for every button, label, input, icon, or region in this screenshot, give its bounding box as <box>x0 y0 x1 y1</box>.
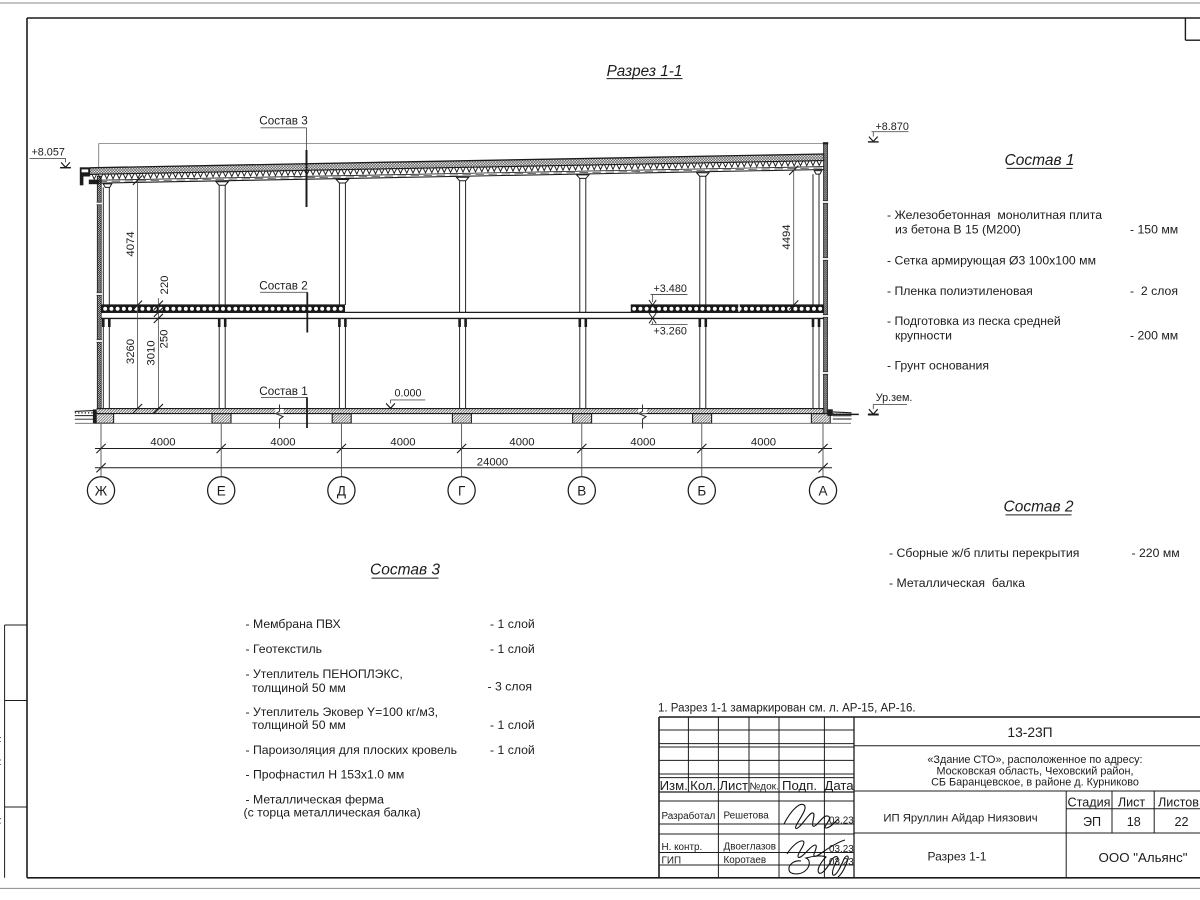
svg-text:0.000: 0.000 <box>395 388 422 400</box>
svg-text:Взам. инв. №: Взам. инв. № <box>0 632 1 688</box>
svg-text:4000: 4000 <box>390 436 415 448</box>
svg-text:- Подготовка из песка средней: - Подготовка из песка средней <box>887 314 1061 328</box>
svg-text:Ур.зем.: Ур.зем. <box>876 392 913 404</box>
svg-text:толщиной 50 мм: толщиной 50 мм <box>252 681 346 695</box>
svg-text:+3.480: +3.480 <box>654 283 687 295</box>
svg-text:«Здание СТО», расположенное по: «Здание СТО», расположенное по адресу: <box>927 754 1142 766</box>
svg-text:Инв. № подл.: Инв. № подл. <box>0 810 1 866</box>
svg-text:- Пароизоляция для плоских кро: - Пароизоляция для плоских кровель <box>246 743 457 757</box>
svg-text:4494: 4494 <box>781 224 793 249</box>
svg-text:Московская область, Чеховский: Московская область, Чеховский район, <box>936 765 1133 777</box>
svg-text:- 200 мм: - 200 мм <box>1130 329 1178 343</box>
svg-text:- 3 слоя: - 3 слоя <box>488 680 533 694</box>
svg-text:Листов: Листов <box>1158 795 1199 809</box>
svg-text:Состав 3: Состав 3 <box>259 114 307 127</box>
svg-text:Лист: Лист <box>719 778 748 793</box>
svg-text:+8.057: +8.057 <box>32 147 65 159</box>
svg-text:- Металлическая балка: - Металлическая балка <box>889 576 1025 590</box>
svg-text:Д: Д <box>337 483 346 498</box>
svg-text:- 2 слоя: - 2 слоя <box>1130 284 1178 298</box>
svg-text:Состав 2: Состав 2 <box>259 280 307 293</box>
svg-text:+8.870: +8.870 <box>876 121 909 133</box>
svg-text:22: 22 <box>1174 815 1188 829</box>
svg-text:- Утеплитель ПЕНОПЛЭКС,: - Утеплитель ПЕНОПЛЭКС, <box>246 667 403 681</box>
svg-text:4000: 4000 <box>150 436 175 448</box>
svg-text:220: 220 <box>159 276 171 295</box>
svg-text:Разработал: Разработал <box>662 811 716 822</box>
svg-text:Б: Б <box>697 483 706 498</box>
svg-text:24000: 24000 <box>477 456 508 468</box>
svg-text:Подп.: Подп. <box>782 778 817 793</box>
svg-text:толщиной 50 мм: толщиной 50 мм <box>252 718 346 732</box>
svg-text:- Железобетонная монолитная п: - Железобетонная монолитная плита <box>887 208 1102 222</box>
svg-text:ГИП: ГИП <box>662 855 682 866</box>
svg-text:- Профнастил Н 153х1.0 мм: - Профнастил Н 153х1.0 мм <box>246 767 405 781</box>
svg-text:- Геотекстиль: - Геотекстиль <box>246 642 323 656</box>
svg-text:СБ Баранцевское, в районе д. К: СБ Баранцевское, в районе д. Курниково <box>931 777 1139 789</box>
svg-text:Стадия: Стадия <box>1068 795 1111 809</box>
svg-text:Изм.: Изм. <box>660 778 688 793</box>
svg-text:А: А <box>818 483 827 498</box>
svg-text:из бетона В 15 (М200): из бетона В 15 (М200) <box>895 223 1021 237</box>
svg-text:4000: 4000 <box>630 436 655 448</box>
svg-text:Состав 1: Состав 1 <box>259 385 307 398</box>
svg-text:Дата: Дата <box>824 778 854 793</box>
svg-text:Лист: Лист <box>1118 795 1146 809</box>
svg-text:- Грунт основания: - Грунт основания <box>887 359 989 373</box>
svg-text:Двоеглазов: Двоеглазов <box>724 841 777 852</box>
svg-text:Кол.: Кол. <box>690 778 716 793</box>
svg-text:Разрез 1-1: Разрез 1-1 <box>607 63 683 80</box>
svg-text:Е: Е <box>217 483 226 498</box>
svg-text:крупности: крупности <box>895 329 952 343</box>
svg-text:13-23П: 13-23П <box>1007 725 1052 740</box>
svg-text:В: В <box>577 483 586 498</box>
svg-text:- 1 слой: - 1 слой <box>490 743 535 757</box>
svg-text:Состав 3: Состав 3 <box>370 561 440 578</box>
svg-text:Решетова: Решетова <box>724 810 770 821</box>
svg-text:- Мембрана ПВХ: - Мембрана ПВХ <box>246 617 341 631</box>
svg-text:+3.260: +3.260 <box>654 326 687 338</box>
svg-text:3010: 3010 <box>146 340 158 365</box>
svg-text:№док.: №док. <box>750 781 779 792</box>
svg-text:- Сборные ж/б плиты перекрытия: - Сборные ж/б плиты перекрытия <box>889 546 1079 560</box>
svg-text:Г: Г <box>458 483 466 498</box>
svg-text:4000: 4000 <box>509 436 534 448</box>
svg-text:ООО "Альянс": ООО "Альянс" <box>1099 850 1188 865</box>
svg-text:- Сетка армирующая Ø3 100х100: - Сетка армирующая Ø3 100х100 мм <box>887 254 1096 268</box>
svg-text:- 1 слой: - 1 слой <box>490 642 535 656</box>
svg-text:- 150 мм: - 150 мм <box>1130 223 1178 237</box>
svg-text:Коротаев: Коротаев <box>724 855 767 866</box>
svg-text:- Металлическая ферма: - Металлическая ферма <box>246 792 385 806</box>
svg-text:Подп. и дата: Подп. и дата <box>0 723 1 776</box>
svg-text:ИП Яруллин Айдар Ниязович: ИП Яруллин Айдар Ниязович <box>883 812 1037 824</box>
svg-text:18: 18 <box>1127 815 1141 829</box>
svg-text:3260: 3260 <box>125 339 137 364</box>
svg-text:- Утеплитель Эковер Y=100 кг/м: - Утеплитель Эковер Y=100 кг/м3, <box>246 705 439 719</box>
svg-text:Разрез 1-1: Разрез 1-1 <box>928 850 987 864</box>
svg-text:- Пленка полиэтиленовая: - Пленка полиэтиленовая <box>887 284 1033 298</box>
svg-text:- 1 слой: - 1 слой <box>490 617 535 631</box>
svg-text:1. Разрез 1-1 замаркирован см.: 1. Разрез 1-1 замаркирован см. л. АР-15,… <box>658 702 916 714</box>
svg-text:4000: 4000 <box>751 436 776 448</box>
svg-text:250: 250 <box>159 330 171 349</box>
svg-text:Н. контр.: Н. контр. <box>662 842 703 853</box>
svg-text:- 1 слой: - 1 слой <box>490 718 535 732</box>
svg-text:- 220 мм: - 220 мм <box>1132 546 1180 560</box>
svg-text:(с торца металлическая балка): (с торца металлическая балка) <box>244 806 421 820</box>
svg-text:Состав 2: Состав 2 <box>1004 498 1074 515</box>
svg-text:03.23: 03.23 <box>829 816 854 827</box>
svg-text:4000: 4000 <box>270 436 295 448</box>
svg-text:Ж: Ж <box>95 483 108 498</box>
svg-text:Состав 1: Состав 1 <box>1005 152 1075 169</box>
svg-text:4074: 4074 <box>125 231 137 256</box>
svg-text:ЭП: ЭП <box>1083 815 1101 829</box>
